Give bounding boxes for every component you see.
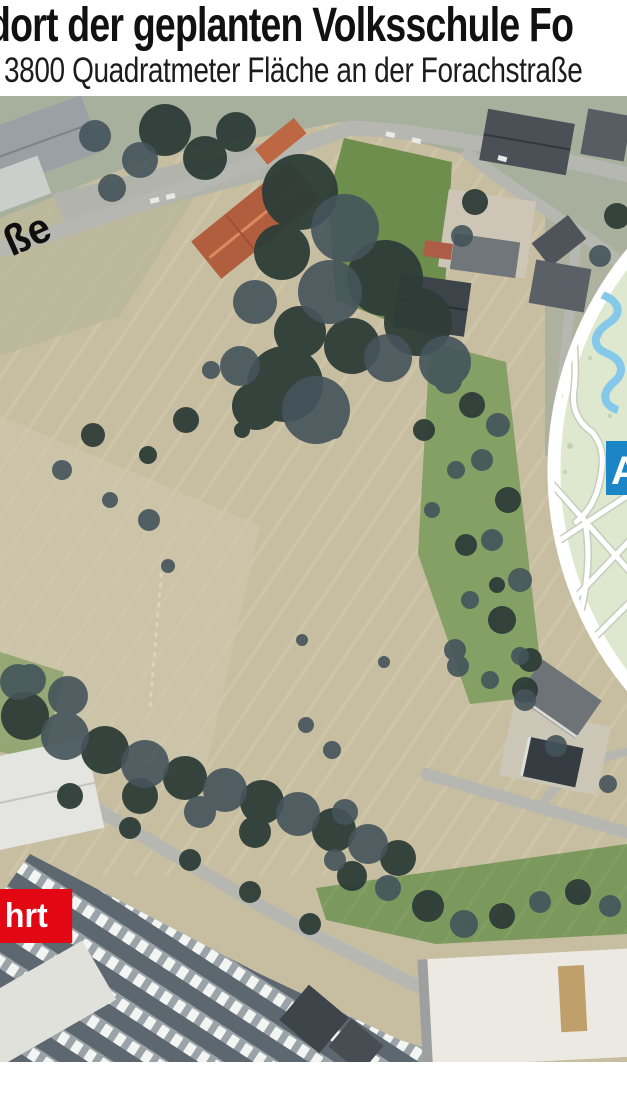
header: dort der geplanten Volksschule Fo 3800 Q…: [0, 0, 627, 96]
access-road-badge-text: hrt: [5, 897, 48, 935]
subheadline-text: 3800 Quadratmeter Fläche an der Forachst…: [4, 51, 582, 90]
inset-map-label: A: [611, 449, 627, 493]
aerial-photo: A ße hrt: [0, 96, 627, 1062]
headline: dort der geplanten Volksschule Fo: [0, 2, 573, 50]
aerial-photo-graphic: A: [0, 96, 627, 1062]
subheadline: 3800 Quadratmeter Fläche an der Forachst…: [4, 52, 582, 90]
access-road-badge: hrt: [0, 889, 72, 943]
headline-text: dort der geplanten Volksschule Fo: [0, 0, 573, 52]
